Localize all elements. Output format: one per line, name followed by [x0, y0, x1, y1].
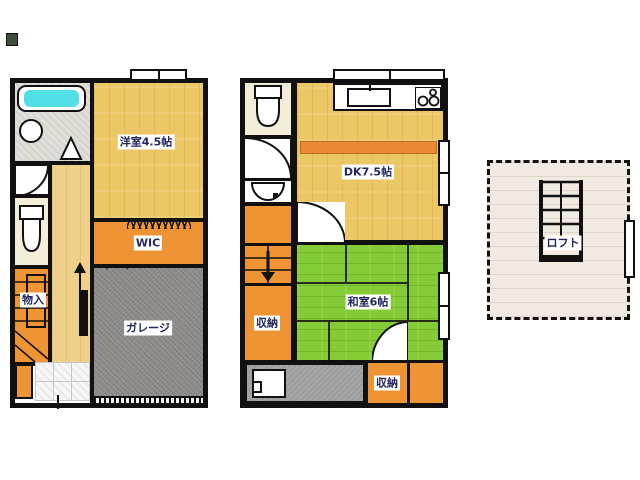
storage-side-label: 収納 — [254, 316, 280, 331]
toilet-room-1f — [15, 198, 48, 265]
stairs-1f — [15, 269, 48, 362]
stairs-down-icon — [245, 246, 291, 283]
loft-window — [624, 220, 635, 278]
toilet-room-2f — [245, 83, 291, 135]
hall-door-arc-icon — [15, 165, 48, 196]
dk-counter-bar — [300, 141, 437, 154]
dk-door-arc-icon — [297, 202, 345, 243]
washbasin-2f — [245, 181, 291, 202]
kitchen-sink-icon — [347, 88, 391, 107]
closet-door-hatch — [127, 222, 191, 229]
closet-2f-left — [245, 206, 291, 243]
floor-plan-2f: 収納 DK7.5帖 和室6帖 — [240, 78, 448, 408]
japanese-room-label: 和室6帖 — [346, 295, 391, 310]
entrance-door-tick — [57, 395, 59, 409]
storage-bottom-label: 収納 — [374, 376, 400, 391]
storage-label: 物入 — [20, 293, 46, 308]
stair-rail-stub — [79, 290, 88, 336]
washing-machine-icon — [252, 369, 286, 398]
balcony — [245, 363, 365, 403]
window-2f-right-dk — [438, 140, 450, 206]
stairs-up-icon — [15, 269, 48, 362]
door-triangle-icon — [59, 135, 83, 161]
garage-door-hinges — [103, 265, 131, 271]
toilet-icon — [15, 198, 48, 265]
window-2f-right-washitsu — [438, 272, 450, 340]
washitsu-door-arc-icon — [372, 322, 408, 363]
western-room-label: 洋室4.5帖 — [118, 135, 175, 150]
window-1f-top — [130, 69, 187, 81]
toilet-icon — [245, 83, 291, 135]
stairs-2f — [245, 246, 291, 283]
closet-2f-bottom-right — [410, 363, 443, 403]
washbasin-icon — [19, 119, 43, 143]
western-room — [94, 83, 203, 218]
toilet-door-arc-icon — [245, 138, 291, 178]
bathtub-icon — [17, 85, 86, 112]
window-2f-top — [333, 69, 445, 81]
stairs-up-arrow-icon — [72, 262, 88, 292]
entrance-tiles — [35, 362, 90, 401]
kitchen-counter — [333, 83, 443, 111]
dk-label: DK7.5帖 — [342, 165, 394, 180]
washbasin-icon — [245, 181, 291, 202]
loft-plan: ロフト — [487, 160, 630, 320]
garage-room — [94, 268, 203, 403]
garage-label: ガレージ — [124, 321, 172, 336]
garage-shutter-icon — [94, 396, 203, 403]
wic-label: WIC — [134, 236, 162, 251]
corner-mark — [6, 33, 18, 46]
gas-stove-icon — [415, 87, 441, 109]
floor-plan-1f: 洋室4.5帖 WIC ガレージ 物入 — [10, 78, 208, 408]
loft-label: ロフト — [545, 236, 582, 251]
entrance-step — [15, 364, 33, 399]
